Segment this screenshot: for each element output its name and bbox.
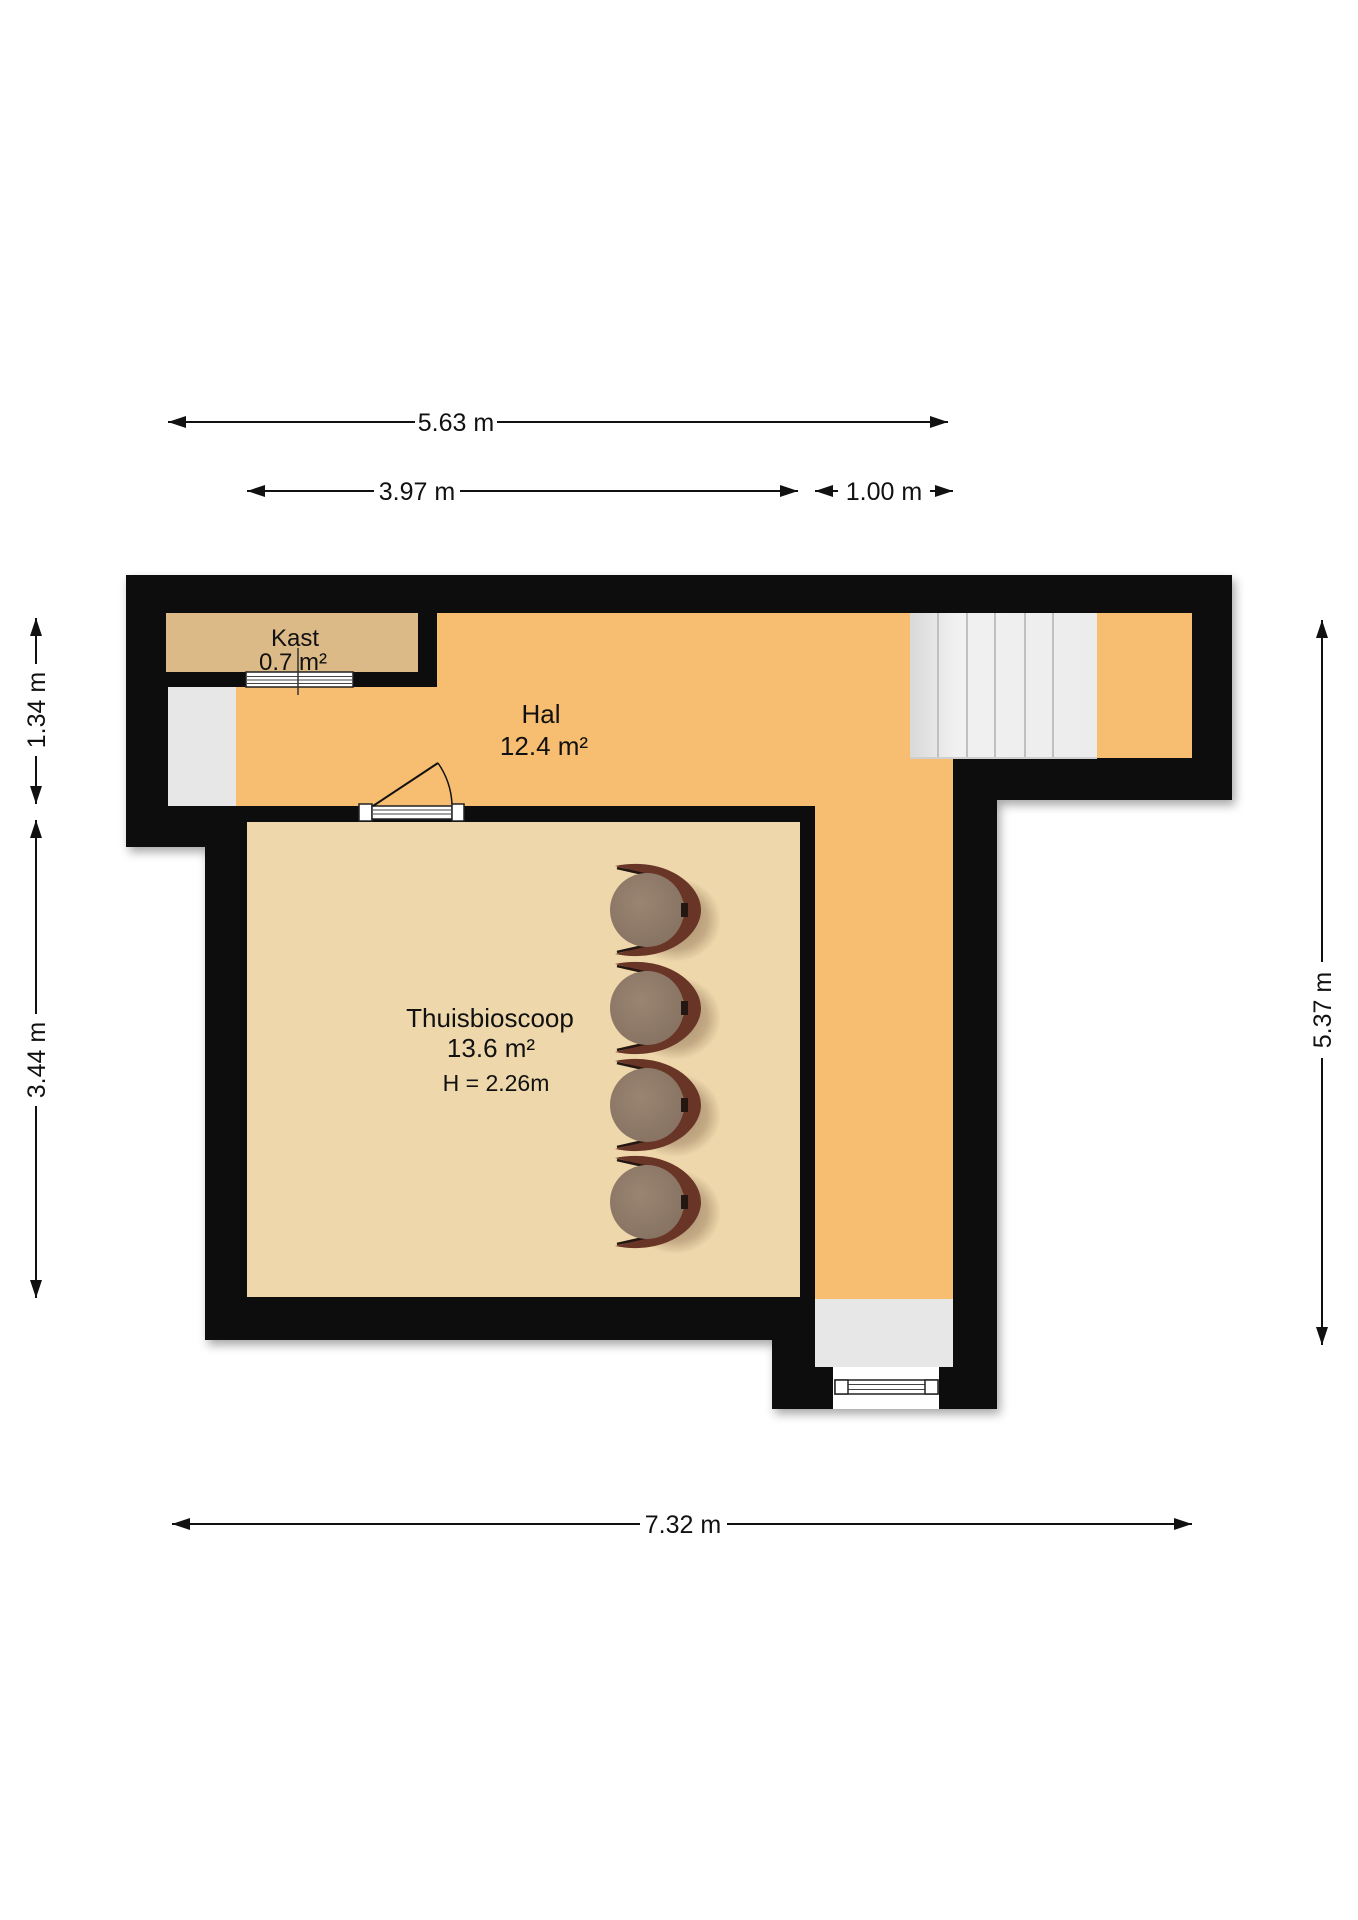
door-post-left	[359, 804, 372, 821]
left-recess	[168, 687, 236, 806]
thuisbioscoop-room-name: Thuisbioscoop	[406, 1003, 574, 1033]
floorplan-page: Kast 0.7 m² Hal 12.4 m² Thuisbioscoop 13…	[0, 0, 1358, 1920]
dim-left-upper-label: 1.34 m	[23, 672, 51, 748]
entrance-sill	[835, 1380, 938, 1394]
entrance-post-left	[835, 1380, 848, 1394]
dim-left-lower-label: 3.44 m	[23, 1022, 51, 1098]
entrance-post-right	[925, 1380, 938, 1394]
dim-top-room-label: 3.97 m	[379, 478, 455, 506]
dim-right-label: 5.37 m	[1309, 972, 1337, 1048]
dim-corridor-label: 1.00 m	[846, 478, 922, 506]
corridor-recess	[815, 1299, 953, 1367]
kast-room-area: 0.7 m²	[259, 649, 327, 676]
hal-room-area: 12.4 m²	[500, 731, 588, 761]
door-sill	[372, 806, 452, 819]
entrance-door	[833, 1367, 939, 1409]
door-post-right	[452, 804, 464, 821]
dim-bottom-label: 7.32 m	[645, 1511, 721, 1539]
thuisbioscoop-room-area: 13.6 m²	[447, 1033, 535, 1063]
stairs	[910, 613, 1097, 758]
dim-top-total-label: 5.63 m	[418, 409, 494, 437]
thuisbioscoop-ceiling-height: H = 2.26m	[443, 1070, 550, 1096]
kast-room-name: Kast	[271, 625, 319, 652]
hal-room-name: Hal	[521, 699, 560, 729]
floorplan-canvas: Kast 0.7 m² Hal 12.4 m² Thuisbioscoop 13…	[0, 0, 1358, 1920]
